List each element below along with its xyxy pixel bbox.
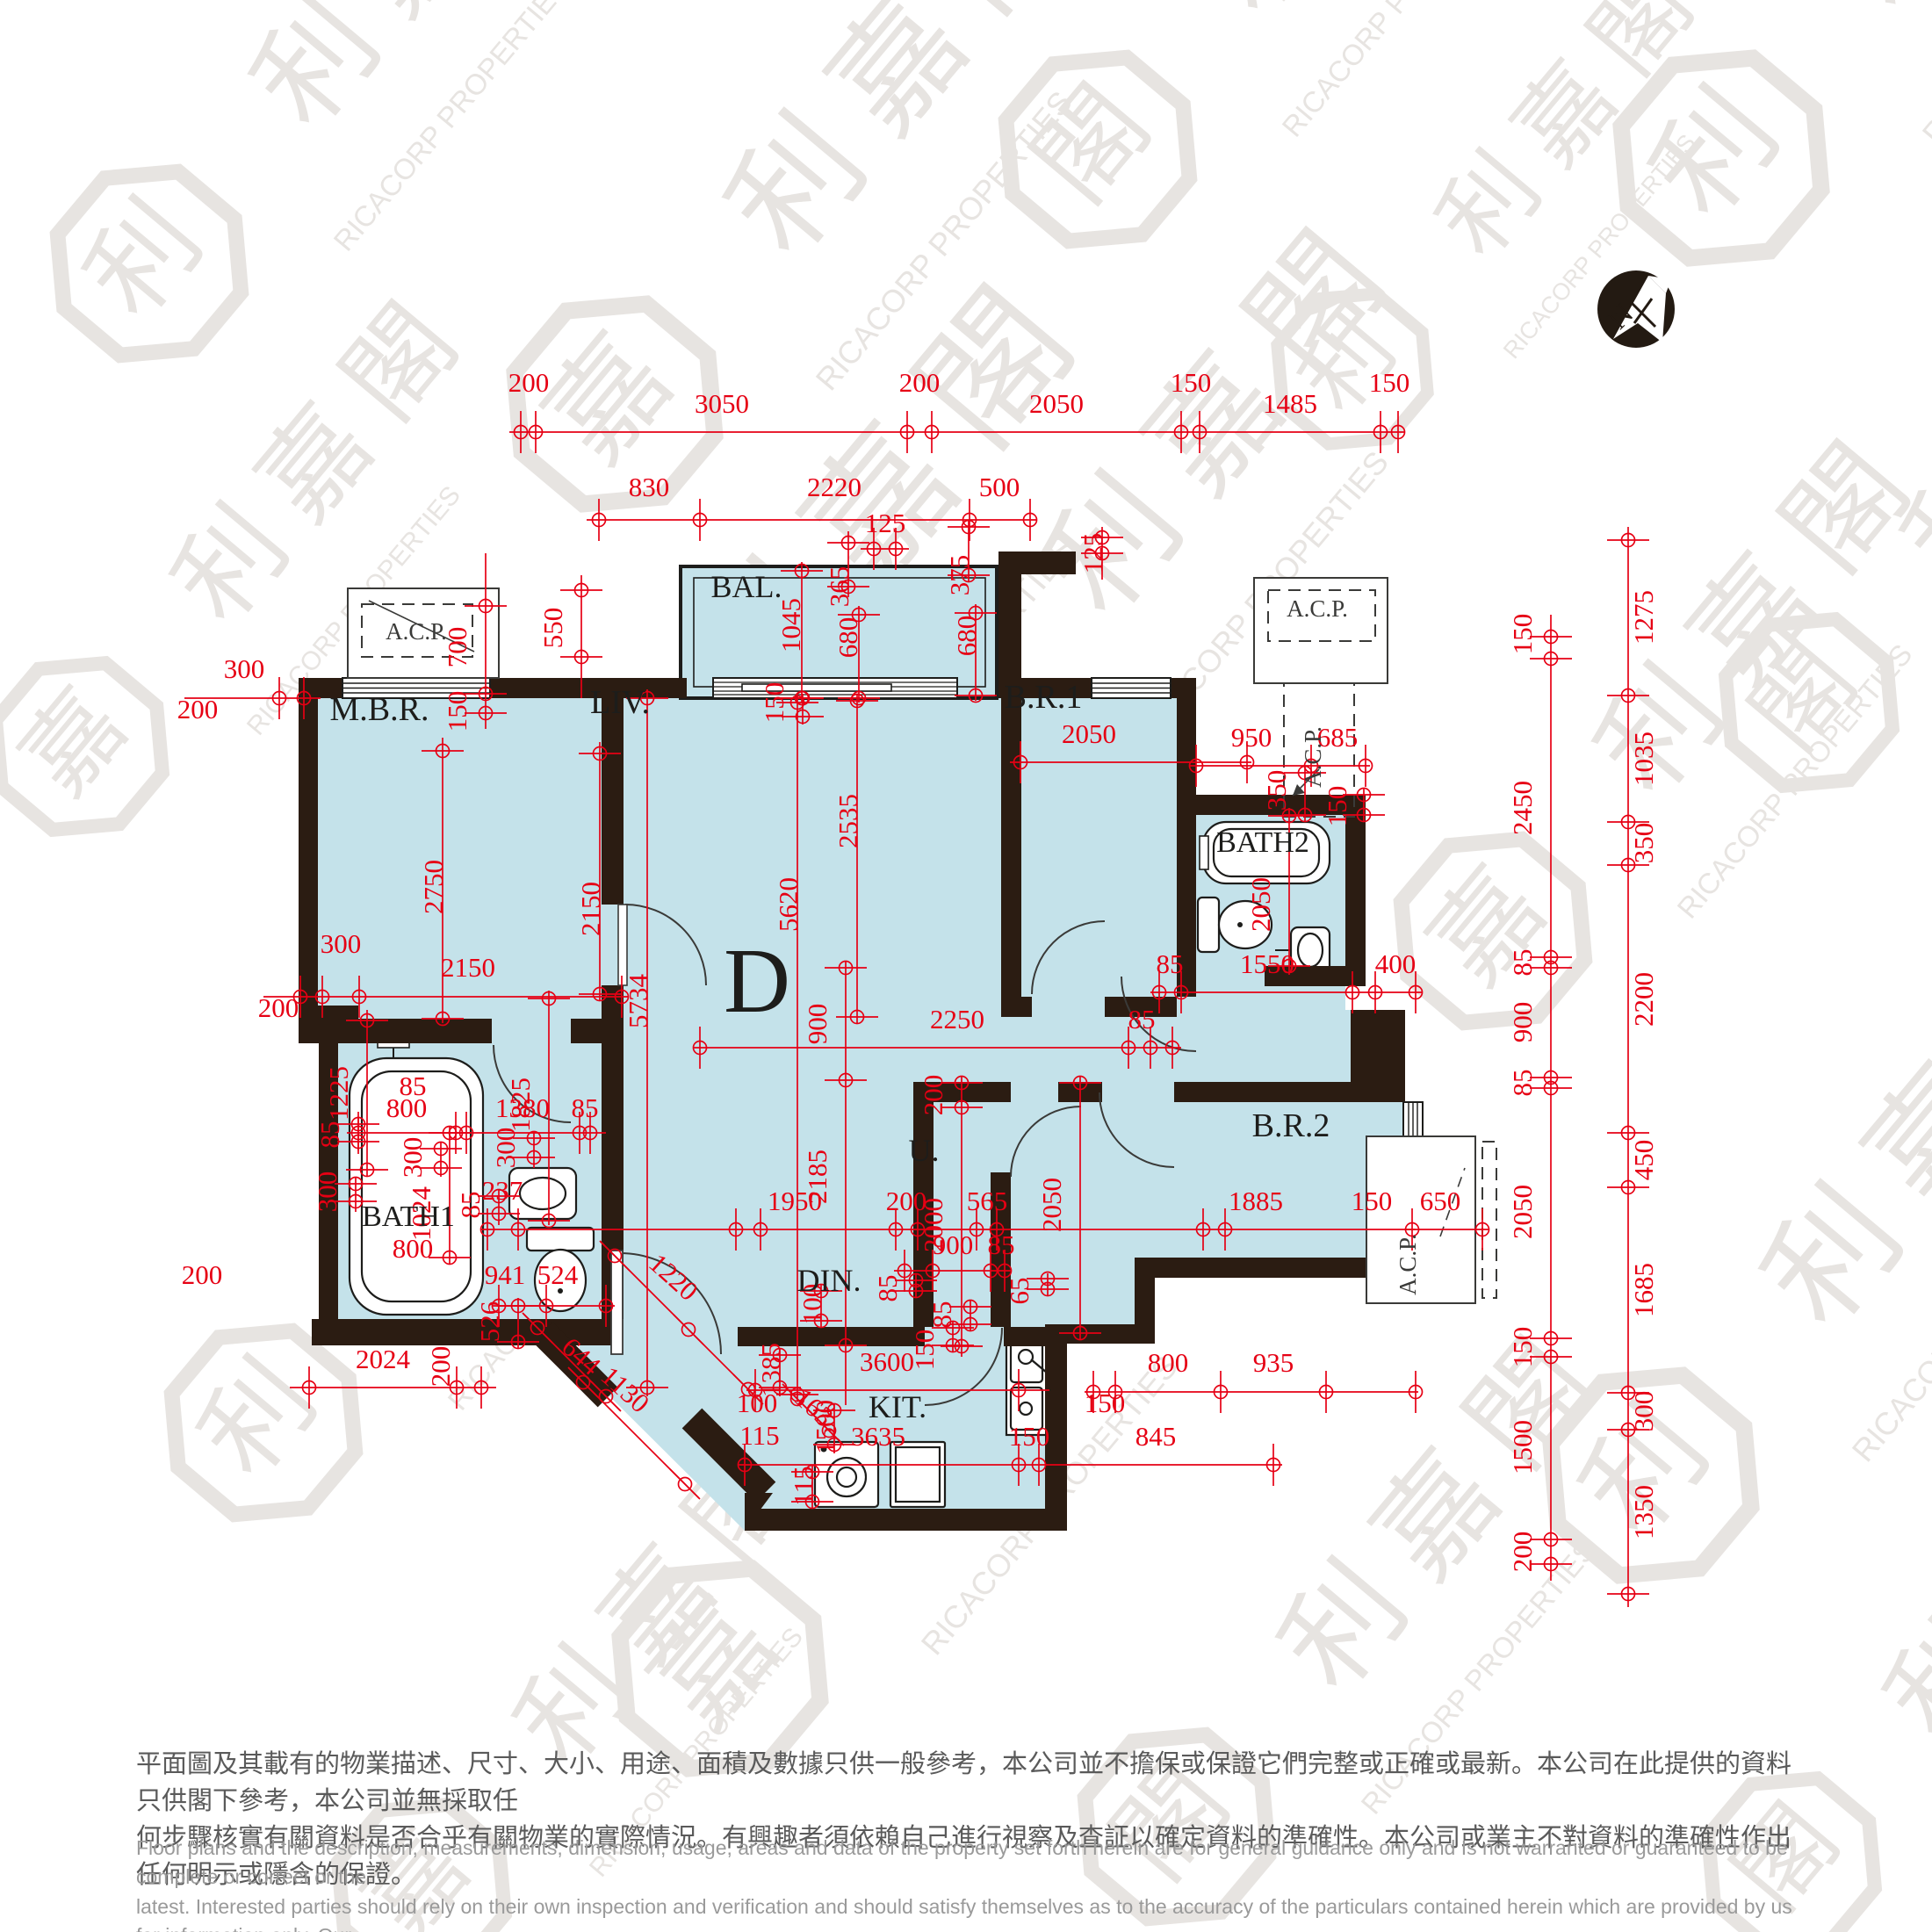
dim-label: 1350 — [1628, 1485, 1659, 1539]
dim-label: 2150 — [441, 952, 495, 983]
dim-label: 150 — [442, 691, 472, 732]
dim-label: 941 — [485, 1259, 526, 1290]
dim-label: 150 — [1352, 1186, 1393, 1216]
dim-label: 85 — [988, 1229, 1015, 1260]
room-label-kit: KIT. — [869, 1389, 926, 1424]
room-label-u: U. — [909, 1133, 940, 1168]
dim-label: 2250 — [930, 1004, 984, 1034]
wall-segment — [1021, 997, 1032, 1017]
dim-label: 2024 — [356, 1344, 411, 1374]
dim-label: 150 — [1171, 367, 1212, 398]
wall-segment — [488, 678, 687, 698]
dim-label: 1885 — [1229, 1186, 1283, 1216]
room-label-br1: B.R.1 — [1005, 679, 1083, 716]
disclaimer-english: Floor plans and the description, measure… — [136, 1834, 1805, 1932]
toilet-tank — [527, 1228, 594, 1251]
dim-label: 150 — [1322, 786, 1352, 827]
dim-label: 85 — [1507, 949, 1538, 977]
watermark-latin: RICACORP PROPERTIES — [1275, 0, 1523, 143]
toilet-tank — [1198, 898, 1219, 952]
room-label-mbr: M.B.R. — [330, 691, 429, 728]
dim-label: 524 — [537, 1259, 579, 1290]
dim-label: 2150 — [575, 882, 606, 936]
dim-label: 680 — [833, 617, 863, 659]
dim-label: 300 — [312, 1171, 342, 1213]
acp-label: A.C.P. — [1287, 595, 1348, 622]
dim-label: 150 — [1009, 1421, 1050, 1452]
wall-segment — [1171, 678, 1196, 698]
room-label-bath2: BATH2 — [1216, 826, 1309, 859]
dim-label: 365 — [824, 566, 854, 608]
dim-label: 300 — [224, 653, 265, 684]
wall-segment — [1004, 1327, 1045, 1346]
dim-label: 200 — [918, 1075, 948, 1116]
dim-label: 2200 — [1628, 972, 1659, 1027]
wall-segment — [1345, 815, 1366, 986]
dim-label: 900 — [1507, 1002, 1538, 1043]
floor-plan-page: 利利嘉閣RICACORP PROPERTIES嘉利嘉閣RICACORP PROP… — [0, 0, 1932, 1932]
dim-label: 2750 — [418, 860, 449, 914]
north-arrow-icon: N — [1597, 270, 1675, 348]
dim-label: 2050 — [1062, 718, 1116, 749]
dim-label: 2220 — [807, 472, 861, 502]
acp-label: A.C.P. — [1395, 1234, 1421, 1295]
dim-label: 526 — [474, 1301, 505, 1343]
dim-label: 85 — [926, 1301, 957, 1329]
dim-label: 1500 — [1507, 1420, 1538, 1474]
room-label-din: DIN. — [797, 1263, 861, 1298]
dim-label: 400 — [1375, 948, 1417, 979]
kitchen-faucet-icon — [1019, 1350, 1033, 1364]
dim-label: 300 — [490, 1128, 521, 1169]
door-leaf — [618, 905, 627, 985]
dim-label: 800 — [386, 1092, 428, 1123]
dim-label: 1275 — [1628, 590, 1659, 645]
wall-segment — [998, 551, 1021, 698]
dim-label: 85 — [1128, 1004, 1156, 1034]
washer-drum-inner — [837, 1467, 856, 1487]
dim-label: 200 — [258, 992, 299, 1023]
dim-label: 650 — [1420, 1186, 1461, 1216]
room-label-bal: BAL. — [711, 569, 782, 604]
dim-label: 150 — [759, 682, 789, 724]
dim-label: 800 — [1148, 1347, 1189, 1378]
room-label-d: D — [724, 929, 790, 1032]
dim-label: 1385 — [755, 1343, 786, 1397]
acp-label: A.C.P. — [386, 618, 447, 645]
dim-label: 2535 — [833, 794, 863, 848]
dim-label: 200 — [182, 1259, 223, 1290]
kitchen-drain — [1020, 1402, 1032, 1415]
dim-label: 680 — [951, 616, 982, 657]
watermark: 利利嘉閣RICACORP PROPERTIES — [1514, 880, 1932, 1655]
dim-label: 2000 — [918, 1198, 948, 1252]
north-arrow-icon: N — [1597, 270, 1675, 348]
dim-label: 150 — [1507, 614, 1538, 655]
acp-box — [1254, 578, 1388, 683]
dim-label: 5620 — [773, 877, 804, 932]
dim-label: 5734 — [623, 974, 653, 1029]
dim-label: 1225 — [323, 1066, 354, 1121]
dim-label: 115 — [739, 1420, 779, 1451]
dim-label: 150 — [1369, 367, 1410, 398]
dim-label: 1685 — [1628, 1263, 1659, 1317]
dim-label: 1045 — [775, 598, 806, 652]
dim-label: 200 — [899, 367, 941, 398]
sink-bowl — [520, 1178, 566, 1209]
dim-label: 125 — [865, 508, 906, 538]
dim-label: 85 — [314, 1121, 345, 1149]
dim-label: 1380 — [495, 1092, 550, 1123]
floor-plan-drawing: 利利嘉閣RICACORP PROPERTIES嘉利嘉閣RICACORP PROP… — [0, 0, 1932, 1932]
acp-box — [1366, 1136, 1475, 1303]
dim-label: 845 — [1135, 1421, 1177, 1452]
room-label-br2: B.R.2 — [1252, 1107, 1330, 1144]
watermark-cjk: 利嘉閣 — [1738, 897, 1932, 1351]
disclaimer-en-line2: latest. Interested parties should rely o… — [136, 1892, 1805, 1932]
dim-label: 115 — [788, 1466, 818, 1505]
dim-label: 85 — [1507, 1070, 1538, 1097]
dim-label: 3050 — [695, 388, 749, 419]
dim-label: 375 — [944, 555, 975, 596]
dim-label: 935 — [1253, 1347, 1294, 1378]
wall-segment — [299, 678, 318, 1043]
disclaimer-zh-line1: 平面圖及其載有的物業描述、尺寸、大小、用途、面積及數據只供一般參考，本公司並不擔… — [136, 1746, 1805, 1820]
dim-label: 200 — [425, 1346, 456, 1388]
dim-label: 950 — [1231, 722, 1272, 753]
faucet-icon — [1200, 836, 1208, 869]
dim-label: 150 — [1507, 1327, 1538, 1368]
dim-label: 800 — [393, 1233, 434, 1264]
dim-label: 550 — [537, 608, 568, 649]
dim-label: 500 — [979, 472, 1020, 502]
dim-label: 900 — [802, 1004, 833, 1045]
dim-label: 1500 — [810, 1400, 840, 1454]
dim-label: 565 — [967, 1186, 1008, 1216]
dim-label: 450 — [1628, 1140, 1659, 1181]
dim-label: 65 — [1004, 1278, 1034, 1305]
watermark-cjk: 利嘉閣 — [152, 264, 496, 643]
dim-label: 237 — [482, 1175, 523, 1206]
dim-label: 1550 — [1240, 948, 1294, 979]
acp-label: A.C.P. — [1300, 726, 1326, 788]
dim-label: 2050 — [1036, 1178, 1067, 1232]
dim-label: 200 — [177, 694, 219, 724]
dim-label: 85 — [1157, 948, 1184, 979]
wall-segment — [571, 1019, 619, 1043]
dim-label: 2050 — [1507, 1185, 1538, 1239]
dim-label: 1035 — [1628, 732, 1659, 786]
appliance-inner — [896, 1447, 940, 1502]
room-label-bath1: BATH1 — [362, 1200, 455, 1233]
toilet-detail — [1237, 922, 1243, 927]
dim-label: 2450 — [1507, 781, 1538, 835]
watermark-cjk: 利嘉閣 — [1808, 0, 1932, 33]
sink-bowl — [1298, 934, 1323, 967]
dim-label: 300 — [1628, 1391, 1659, 1432]
dim-label: 1485 — [1263, 388, 1317, 419]
dim-label: 2050 — [1029, 388, 1084, 419]
dim-label: 350 — [1628, 823, 1659, 864]
wall-segment — [1351, 1010, 1405, 1082]
wall-segment — [991, 1082, 1011, 1102]
dim-label: 3635 — [851, 1421, 905, 1452]
dim-label: 85 — [872, 1275, 903, 1302]
dim-label: 350 — [1261, 770, 1292, 811]
dim-label: 200 — [508, 367, 550, 398]
dim-label: 150 — [1085, 1388, 1126, 1418]
watermark-cjk: 利嘉閣 — [1257, 1296, 1635, 1712]
dim-label: 1950 — [768, 1186, 822, 1216]
dim-label: 830 — [629, 472, 670, 502]
dim-label: 300 — [397, 1137, 428, 1179]
room-label-liv: LIV. — [590, 684, 650, 721]
dim-label: 85 — [572, 1092, 599, 1123]
disclaimer-en-line1: Floor plans and the description, measure… — [136, 1834, 1805, 1892]
dim-label: 200 — [1507, 1532, 1538, 1573]
wall-segment — [745, 1509, 1067, 1531]
wall-segment — [1174, 1082, 1405, 1102]
dim-label: 125 — [1078, 533, 1108, 574]
dim-label: 3600 — [860, 1346, 914, 1377]
dim-label: 85 — [455, 1192, 486, 1219]
acp-dashed-box — [1482, 1142, 1496, 1298]
dim-label: 2050 — [1245, 877, 1276, 932]
wall-segment — [1001, 678, 1021, 1017]
dim-label: 300 — [321, 928, 362, 959]
entrance-door-leaf — [611, 1251, 623, 1354]
